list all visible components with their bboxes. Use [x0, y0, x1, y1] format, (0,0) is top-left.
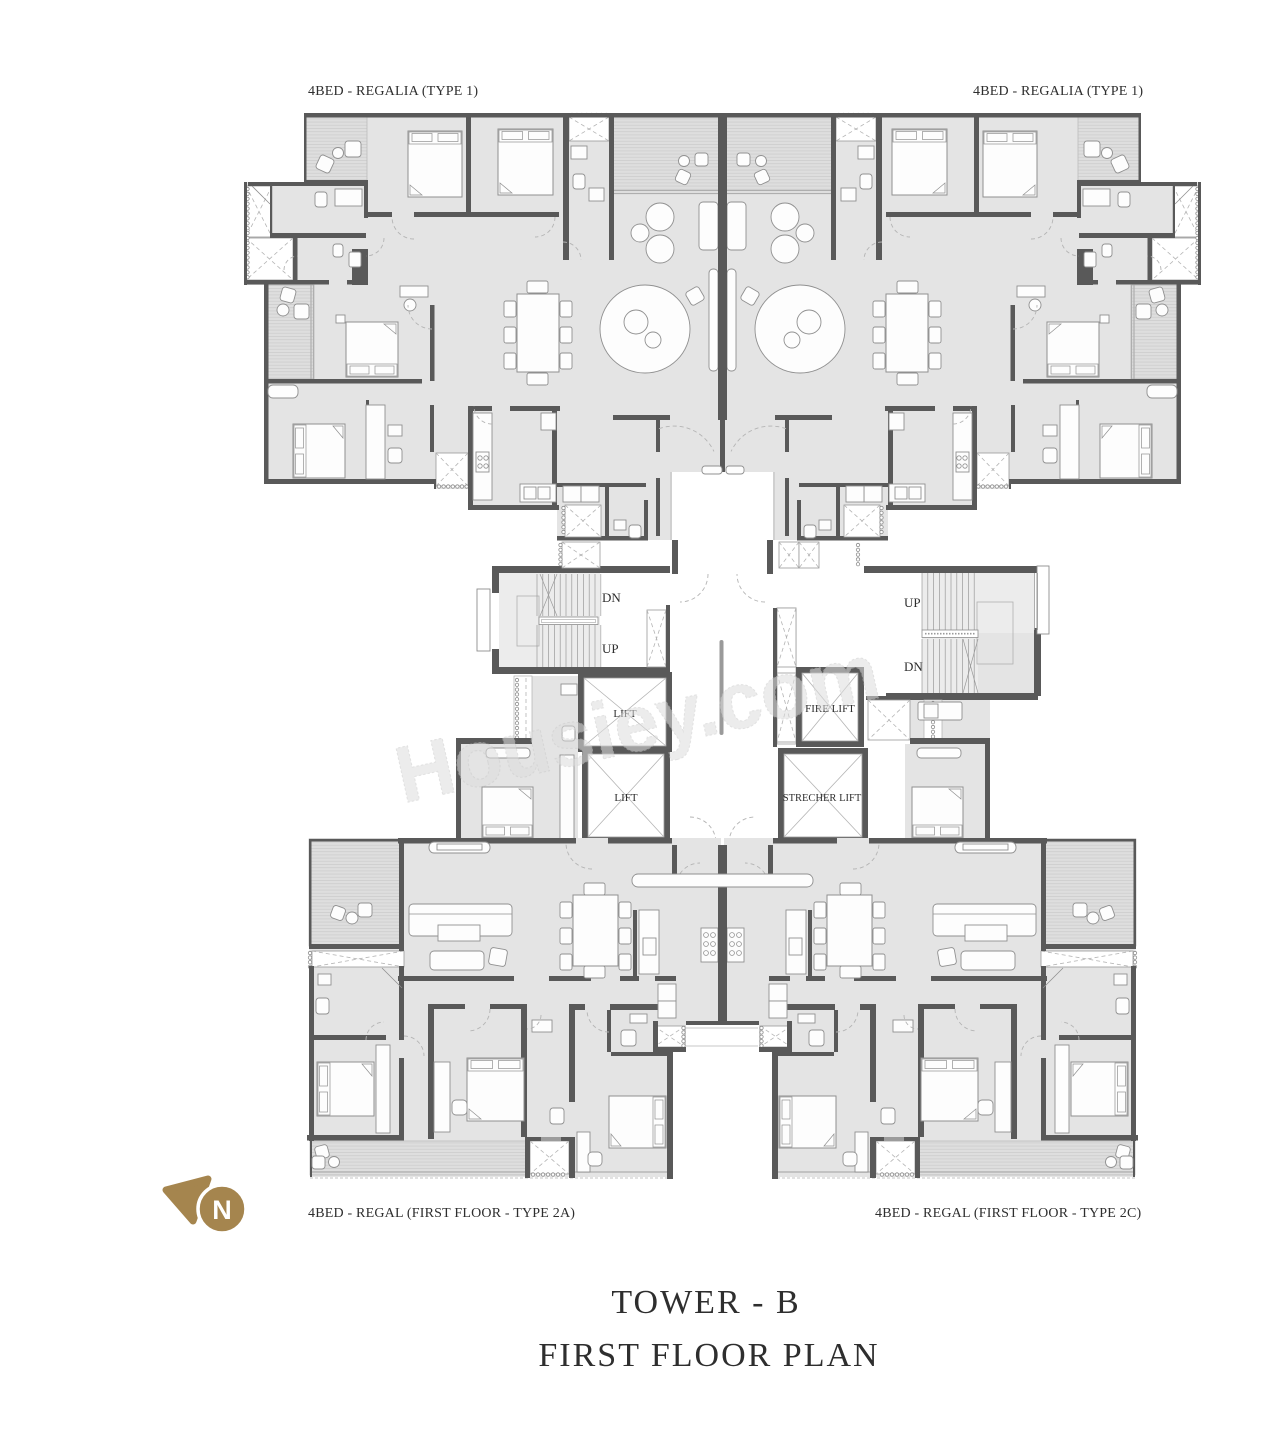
svg-text:4BED - REGALIA (TYPE 1): 4BED - REGALIA (TYPE 1): [308, 84, 478, 99]
svg-text:TOWER - B: TOWER - B: [611, 1284, 800, 1321]
svg-text:DN: DN: [904, 659, 923, 674]
svg-text:FIRST FLOOR PLAN: FIRST FLOOR PLAN: [538, 1337, 879, 1374]
svg-text:DN: DN: [602, 590, 621, 605]
svg-text:STRECHER LIFT: STRECHER LIFT: [783, 793, 862, 804]
svg-text:4BED - REGAL (FIRST FLOOR - TY: 4BED - REGAL (FIRST FLOOR - TYPE 2C): [875, 1206, 1141, 1221]
svg-text:LIFT: LIFT: [614, 792, 638, 804]
svg-text:UP: UP: [904, 595, 921, 610]
svg-text:UP: UP: [602, 641, 619, 656]
svg-text:N: N: [212, 1195, 232, 1225]
svg-text:4BED - REGAL (FIRST FLOOR - TY: 4BED - REGAL (FIRST FLOOR - TYPE 2A): [308, 1206, 575, 1221]
svg-text:4BED - REGALIA (TYPE 1): 4BED - REGALIA (TYPE 1): [973, 84, 1143, 99]
